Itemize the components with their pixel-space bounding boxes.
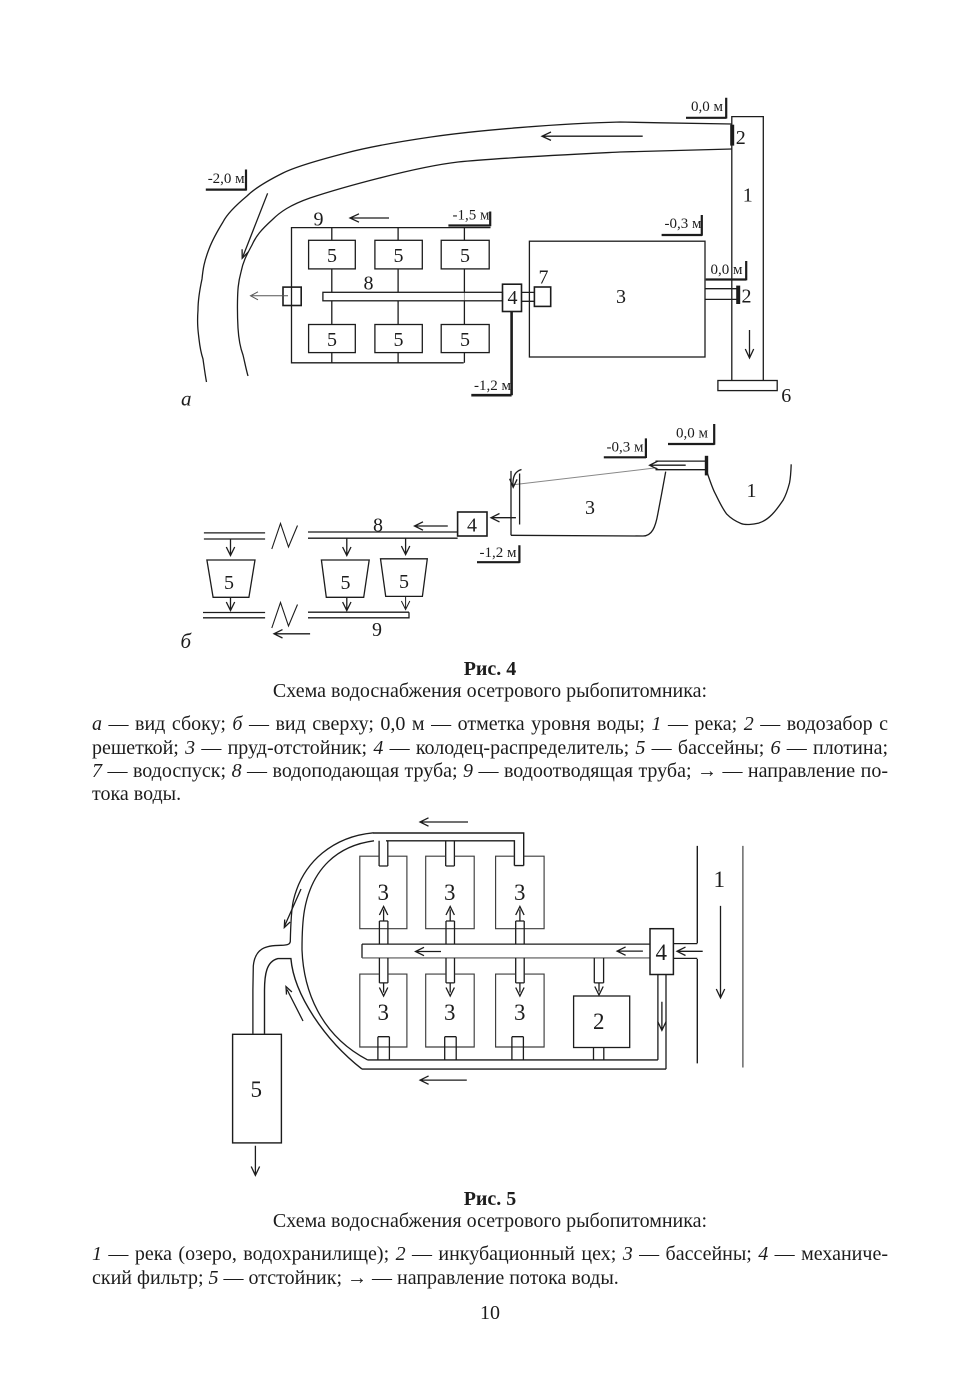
svg-text:3: 3 [378,880,390,905]
svg-text:4: 4 [508,287,518,309]
svg-text:9: 9 [314,209,324,231]
svg-text:5: 5 [460,329,470,351]
svg-text:5: 5 [327,245,337,267]
svg-text:б: б [181,629,193,653]
svg-text:5: 5 [327,329,337,351]
svg-text:-1,5 м: -1,5 м [453,208,490,224]
svg-text:1: 1 [747,480,757,502]
svg-text:5: 5 [251,1077,263,1102]
svg-text:а: а [181,387,192,411]
svg-text:5: 5 [341,572,351,594]
svg-text:3: 3 [444,1000,456,1025]
svg-text:8: 8 [364,272,374,294]
svg-text:-2,0 м: -2,0 м [208,171,245,187]
svg-text:3: 3 [514,1000,526,1025]
svg-text:-1,2 м: -1,2 м [480,545,517,561]
svg-text:6: 6 [781,385,791,407]
svg-text:8: 8 [373,515,383,537]
svg-text:3: 3 [514,880,526,905]
svg-text:3: 3 [585,497,595,519]
svg-text:5: 5 [224,572,234,594]
svg-text:7: 7 [539,267,549,289]
svg-text:0,0 м: 0,0 м [691,99,724,115]
svg-text:3: 3 [378,1000,390,1025]
svg-text:0,0 м: 0,0 м [676,425,709,441]
svg-text:1: 1 [743,184,753,206]
svg-text:-1,2 м: -1,2 м [474,378,511,394]
svg-text:3: 3 [616,286,626,308]
svg-text:5: 5 [394,329,404,351]
svg-text:9: 9 [372,619,382,641]
svg-text:2: 2 [736,127,746,149]
svg-text:1: 1 [714,867,726,892]
svg-text:3: 3 [444,880,456,905]
svg-text:-0,3 м: -0,3 м [665,216,702,232]
svg-text:2: 2 [593,1009,605,1034]
svg-text:4: 4 [656,940,668,965]
svg-text:5: 5 [460,245,470,267]
svg-text:5: 5 [399,571,409,593]
svg-text:4: 4 [467,515,477,537]
svg-text:5: 5 [394,245,404,267]
svg-text:2: 2 [742,285,752,307]
svg-text:-0,3 м: -0,3 м [607,439,644,455]
svg-text:0,0 м: 0,0 м [711,262,744,278]
